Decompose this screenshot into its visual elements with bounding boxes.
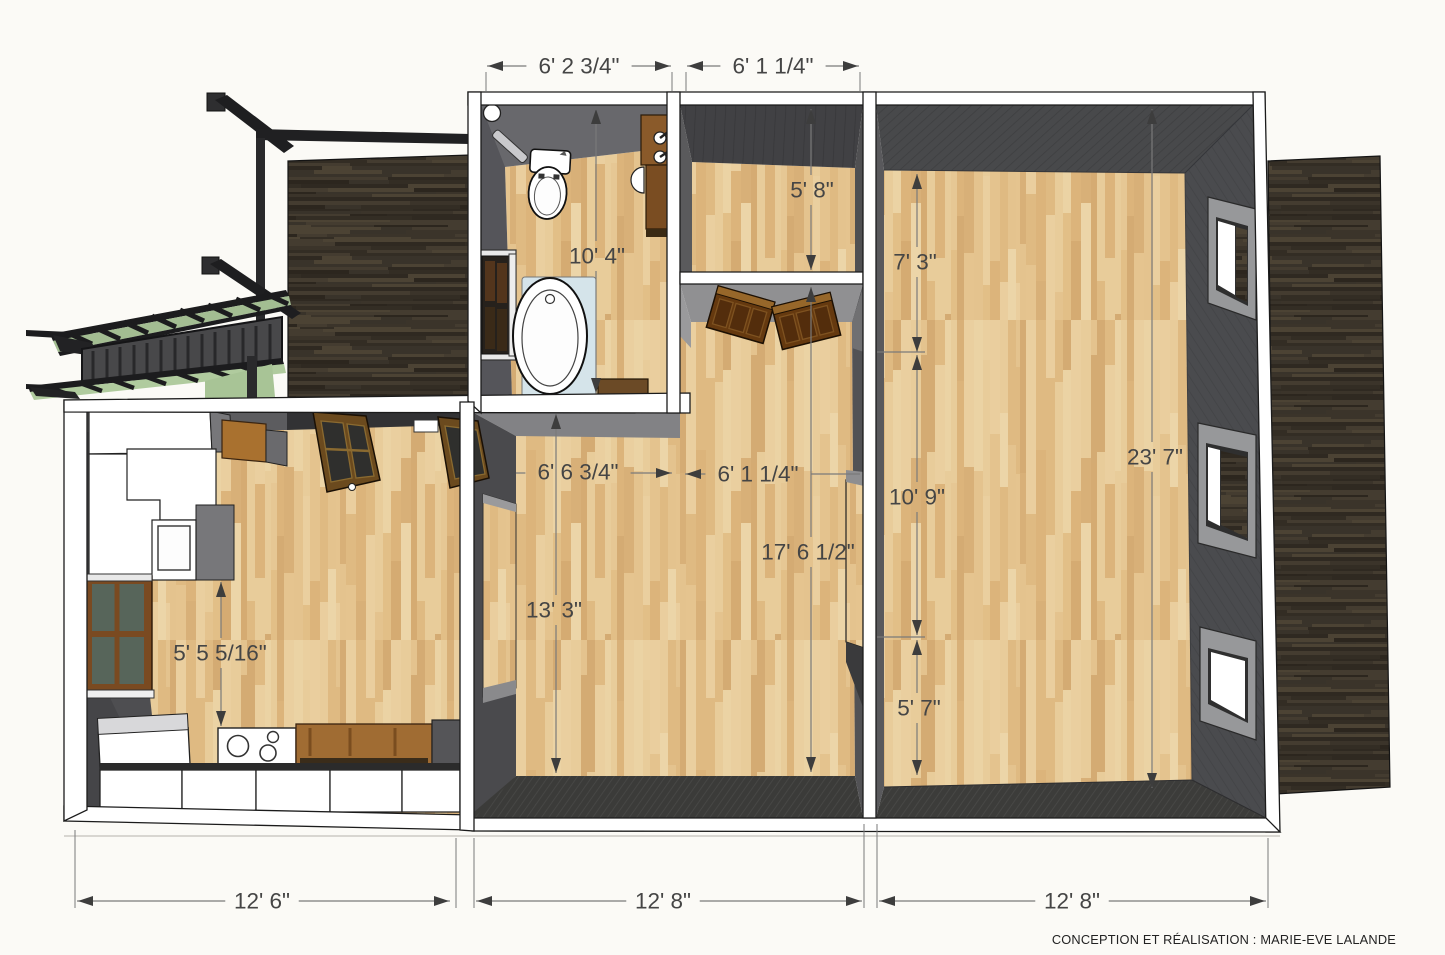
svg-text:5' 8": 5' 8" (790, 178, 834, 203)
svg-text:10' 9": 10' 9" (889, 485, 945, 510)
svg-text:23' 7": 23' 7" (1127, 445, 1183, 470)
svg-text:6' 1 1/4": 6' 1 1/4" (732, 54, 813, 79)
svg-text:17' 6 1/2": 17' 6 1/2" (761, 540, 855, 565)
svg-text:6' 1 1/4": 6' 1 1/4" (717, 462, 798, 487)
svg-text:12' 8": 12' 8" (635, 889, 691, 914)
svg-text:5' 5 5/16": 5' 5 5/16" (173, 641, 267, 666)
svg-text:6' 6 3/4": 6' 6 3/4" (537, 460, 618, 485)
svg-text:13' 3": 13' 3" (526, 598, 582, 623)
svg-text:5' 7": 5' 7" (897, 696, 941, 721)
svg-text:6' 2 3/4": 6' 2 3/4" (538, 54, 619, 79)
svg-text:7' 3": 7' 3" (893, 250, 937, 275)
svg-text:10' 4": 10' 4" (569, 244, 625, 269)
svg-text:12' 8": 12' 8" (1044, 889, 1100, 914)
svg-text:12' 6": 12' 6" (234, 889, 290, 914)
svg-text:CONCEPTION ET RÉALISATION : MA: CONCEPTION ET RÉALISATION : MARIE-EVE LA… (1052, 932, 1396, 947)
